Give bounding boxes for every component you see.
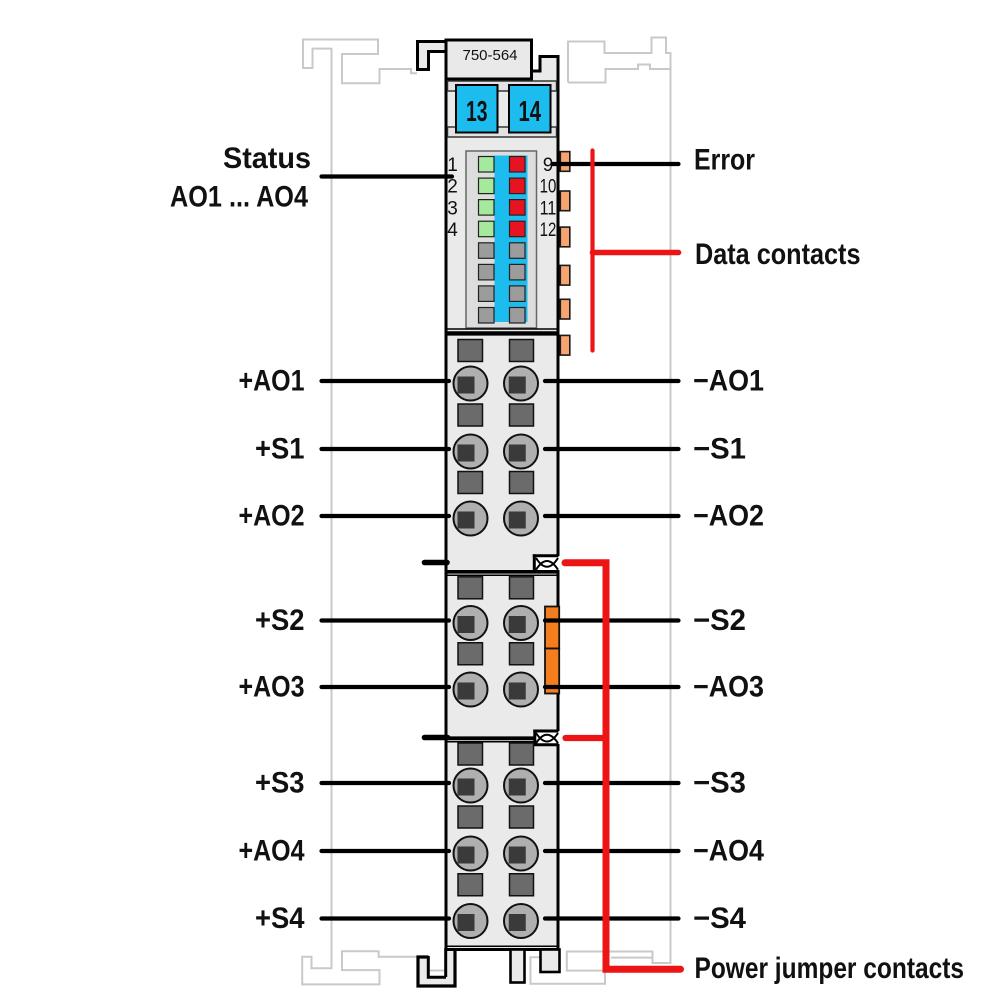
svg-text:−AO2: −AO2 bbox=[693, 500, 764, 533]
svg-text:Data contacts: Data contacts bbox=[695, 238, 861, 271]
svg-text:+AO1: +AO1 bbox=[239, 365, 305, 398]
svg-text:−S3: −S3 bbox=[693, 767, 746, 800]
svg-text:4: 4 bbox=[447, 220, 458, 241]
svg-text:+AO2: +AO2 bbox=[239, 500, 305, 533]
svg-text:Error: Error bbox=[694, 144, 755, 177]
svg-text:12: 12 bbox=[540, 220, 557, 241]
svg-text:+AO4: +AO4 bbox=[239, 835, 305, 868]
svg-text:10: 10 bbox=[540, 177, 557, 198]
svg-text:+S3: +S3 bbox=[255, 767, 305, 800]
svg-text:Power jumper contacts: Power jumper contacts bbox=[695, 952, 965, 985]
svg-text:13: 13 bbox=[466, 96, 488, 128]
svg-text:−AO3: −AO3 bbox=[693, 671, 764, 704]
svg-text:+S4: +S4 bbox=[255, 902, 305, 935]
svg-text:14: 14 bbox=[519, 96, 542, 128]
svg-text:+S2: +S2 bbox=[255, 604, 305, 637]
svg-text:−AO4: −AO4 bbox=[693, 835, 764, 868]
svg-text:−S2: −S2 bbox=[693, 604, 746, 637]
svg-text:−S1: −S1 bbox=[693, 433, 746, 466]
svg-text:−AO1: −AO1 bbox=[693, 365, 764, 398]
svg-text:+S1: +S1 bbox=[255, 433, 305, 466]
svg-text:11: 11 bbox=[540, 198, 557, 219]
svg-text:Status: Status bbox=[223, 142, 311, 175]
svg-text:−S4: −S4 bbox=[693, 902, 746, 935]
svg-text:2: 2 bbox=[447, 177, 458, 198]
svg-text:AO1 ... AO4: AO1 ... AO4 bbox=[170, 181, 308, 214]
svg-text:750-564: 750-564 bbox=[463, 47, 518, 64]
svg-text:3: 3 bbox=[447, 198, 458, 219]
svg-text:+AO3: +AO3 bbox=[239, 671, 305, 704]
svg-text:1: 1 bbox=[447, 155, 458, 176]
